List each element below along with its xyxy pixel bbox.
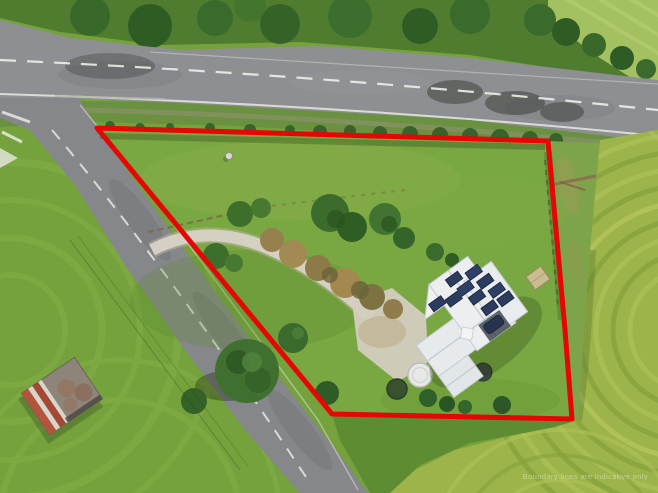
tree xyxy=(524,4,556,36)
tree xyxy=(260,4,300,44)
tree xyxy=(215,339,279,403)
tree xyxy=(610,46,634,70)
tree xyxy=(552,18,580,46)
tree xyxy=(128,4,172,48)
aerial-photo-canvas xyxy=(0,0,658,493)
tree xyxy=(278,323,308,353)
tree xyxy=(402,8,438,44)
white-tank xyxy=(408,363,432,387)
dirt-patch xyxy=(358,316,406,348)
tree xyxy=(582,33,606,57)
tree-shadow xyxy=(427,80,483,104)
tree-shadow xyxy=(540,102,584,122)
tree xyxy=(197,0,233,36)
aerial-photo: Boundary lines are indicative only xyxy=(0,0,658,493)
tree xyxy=(181,388,207,414)
green-tank xyxy=(387,379,407,399)
tree xyxy=(636,59,656,79)
watermark-text: Boundary lines are indicative only xyxy=(523,472,648,481)
